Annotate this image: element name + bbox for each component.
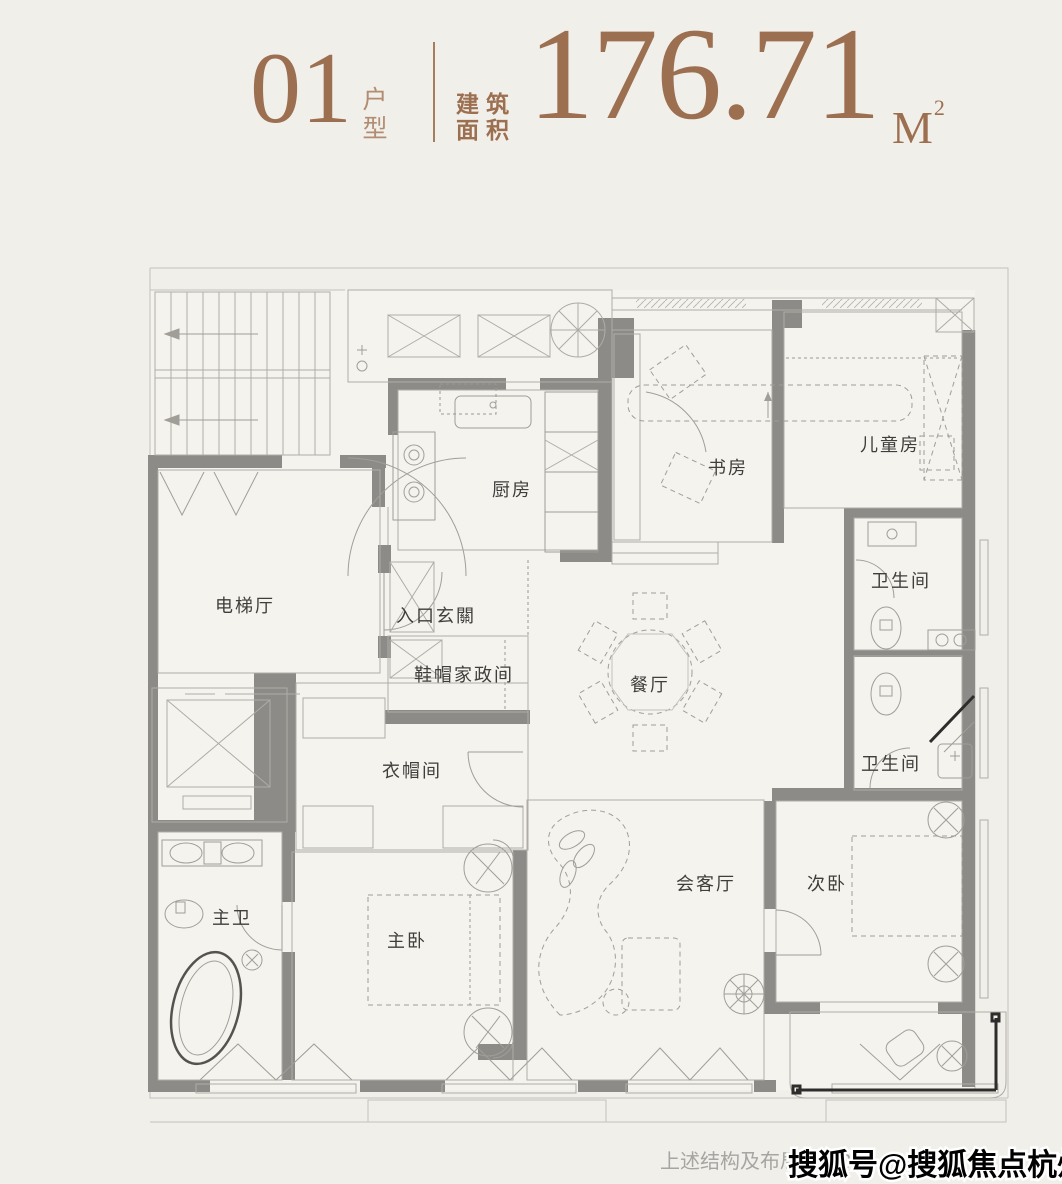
room-label-cloakroom: 衣帽间 — [382, 761, 442, 781]
floorplan-page: { "header": { "unit_number": "01", "unit… — [0, 0, 1062, 1184]
watermark: 搜狐号@搜狐焦点杭州站 — [788, 1140, 1062, 1184]
room-label-study: 书房 — [708, 458, 748, 478]
room-label-kids-room: 儿童房 — [860, 435, 920, 455]
floor-plan: 电梯厅厨房入口玄關鞋帽家政间书房儿童房卫生间餐厅卫生间衣帽间主卫主卧会客厅次卧 — [0, 0, 1062, 1184]
room-label-entry-foyer: 入口玄關 — [396, 606, 476, 626]
room-label-kitchen: 厨房 — [492, 480, 532, 500]
room-label-bathroom-upper: 卫生间 — [871, 571, 931, 591]
right-windows — [980, 540, 988, 998]
room-label-bathroom-lower: 卫生间 — [861, 754, 921, 774]
room-label-master-bathroom: 主卫 — [212, 908, 252, 928]
room-label-master-bedroom: 主卧 — [387, 931, 427, 951]
room-label-living-room: 会客厅 — [676, 874, 736, 894]
room-label-dining-room: 餐厅 — [630, 675, 670, 695]
room-label-lift-lobby: 电梯厅 — [215, 596, 275, 616]
room-label-shoe-utility: 鞋帽家政间 — [414, 665, 514, 685]
room-label-second-bedroom: 次卧 — [807, 874, 847, 894]
